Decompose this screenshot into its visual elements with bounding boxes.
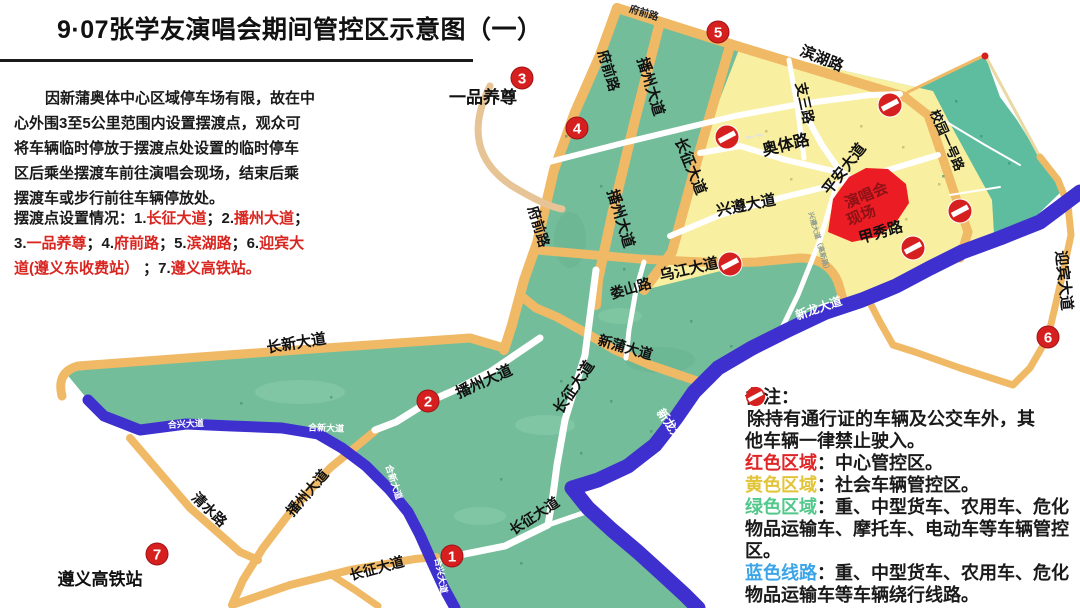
- intro-line: 因新蒲奥体中心区域停车场有限，故在中: [14, 86, 314, 111]
- shuttle-note-text: ；4.: [87, 235, 115, 252]
- map-label: 长征大道: [348, 553, 406, 583]
- legend-text: 区。: [745, 541, 781, 561]
- red-dot: [982, 53, 989, 60]
- map-speck: [955, 100, 958, 103]
- legend-line: 除持有通行证的车辆及公交车外，其: [745, 408, 1080, 430]
- legend-line: 蓝色线路：重、中型货车、农用车、危化: [745, 562, 1080, 584]
- legend-line: 红色区域：中心管控区。: [745, 452, 1080, 474]
- shuttle-place-name: 一品养尊: [27, 235, 87, 252]
- map-speck: [730, 345, 733, 348]
- shuttle-place-name: 滨湖路: [187, 235, 232, 252]
- terrain-patch: [598, 308, 642, 324]
- intro-line: 区后乘坐摆渡车前往演唱会现场，结束后乘: [14, 161, 314, 186]
- map-label: 合新大道: [308, 421, 344, 433]
- shuttle-note-text: ；5.: [159, 235, 187, 252]
- map-speck: [600, 185, 603, 188]
- terrain-patch: [554, 212, 586, 268]
- legend-zone-label: 红色区域: [745, 453, 817, 473]
- shuttle-marker-number: 4: [573, 121, 582, 138]
- road-dash: [756, 134, 763, 137]
- legend-line: 物品运输车等车辆绕行线路。: [745, 584, 1080, 606]
- map-speck: [765, 130, 768, 133]
- shuttle-note-text: ；6.: [232, 235, 260, 252]
- shuttle-place-name: 播州大道: [234, 210, 294, 227]
- shuttle-marker-number: 1: [448, 549, 456, 566]
- legend-line: 备注：: [745, 386, 1080, 408]
- legend-line: 黄色区域：社会车辆管控区。: [745, 474, 1080, 496]
- legend: 备注：除持有通行证的车辆及公交车外，其他车辆一律禁止驶入。红色区域：中心管控区。…: [745, 386, 1080, 606]
- legend-text: ：社会车辆管控区。: [817, 475, 979, 495]
- map-speck: [942, 175, 945, 178]
- legend-line: 物品运输车、摩托车、电动车等车辆管控: [745, 518, 1080, 540]
- road-dash: [746, 136, 753, 139]
- shuttle-note-line: 道(遵义东收费站） ；7.遵义高铁站。: [14, 256, 324, 281]
- title-underline: [0, 59, 473, 62]
- intro-line: 将车辆临时停放于摆渡点处设置的临时停车: [14, 136, 314, 161]
- terrain-patch: [454, 507, 506, 525]
- terrain-patch: [255, 380, 345, 404]
- shuttle-place-name: 道(遵义东收费站）: [14, 260, 139, 277]
- map-speck: [565, 135, 568, 138]
- map-speck: [938, 183, 941, 186]
- legend-text: ：重、中型货车、农用车、危化: [817, 563, 1069, 583]
- shuttle-note: 摆渡点设置情况：1.长征大道；2.播州大道；3.一品养尊；4.府前路；5.滨湖路…: [14, 206, 324, 281]
- intro-line: 心外围3至5公里范围内设置摆渡点，观众可: [14, 111, 314, 136]
- shuttle-note-text: ；7.: [139, 260, 171, 277]
- shuttle-marker-number: 6: [1044, 330, 1052, 347]
- legend-zone-label: 蓝色线路: [745, 563, 817, 583]
- legend-text: ：中心管控区。: [817, 453, 943, 473]
- map-label: 播州大道: [283, 466, 332, 519]
- map-speck: [790, 178, 793, 181]
- map-speck: [610, 400, 613, 403]
- map-speck: [240, 402, 243, 405]
- map-speck: [520, 562, 523, 565]
- map-label: 一品养尊: [449, 87, 517, 107]
- map-speck: [905, 218, 908, 221]
- intro-paragraph: 因新蒲奥体中心区域停车场有限，故在中心外围3至5公里范围内设置摆渡点，观众可将车…: [14, 86, 314, 211]
- map-speck: [580, 452, 583, 455]
- legend-text: 物品运输车、摩托车、电动车等车辆管控: [745, 519, 1069, 539]
- screenshot-root: 演唱会现场府前路滨湖路支三路校园一号路奥体路平安大道兴遵大道甲秀路乌江大道娄山路…: [0, 0, 1080, 608]
- map-speck: [500, 478, 503, 481]
- shuttle-marker-number: 5: [714, 25, 722, 42]
- legend-zone-label: 绿色区域: [745, 497, 817, 517]
- shuttle-note-text: ；: [294, 210, 309, 227]
- shuttle-marker-number: 2: [424, 394, 432, 411]
- shuttle-marker-number: 7: [153, 547, 161, 564]
- map-speck: [690, 320, 693, 323]
- legend-line: 区。: [745, 540, 1080, 562]
- map-label: 合兴大道: [168, 417, 205, 430]
- shuttle-marker-number: 3: [518, 71, 526, 88]
- map-speck: [860, 125, 863, 128]
- legend-text: ：重、中型货车、农用车、危化: [817, 497, 1069, 517]
- map-speck: [1008, 162, 1011, 165]
- legend-zone-label: 黄色区域: [745, 475, 817, 495]
- legend-text: 物品运输车等车辆绕行线路。: [745, 585, 979, 605]
- map-speck: [980, 135, 983, 138]
- shuttle-note-line: 3.一品养尊；4.府前路；5.滨湖路；6.迎宾大: [14, 231, 324, 256]
- shuttle-place-name: 遵义高铁站。: [171, 260, 261, 277]
- legend-text: 除持有通行证的车辆及公交车外，其: [747, 409, 1035, 429]
- shuttle-note-text: ；2.: [207, 210, 235, 227]
- legend-text: 他车辆一律禁止驶入。: [745, 431, 925, 451]
- legend-line: 绿色区域：重、中型货车、农用车、危化: [745, 496, 1080, 518]
- shuttle-place-name: 府前路: [114, 235, 159, 252]
- page-title: 9·07张学友演唱会期间管控区示意图（一）: [57, 10, 577, 46]
- map-speck: [560, 380, 563, 383]
- map-label: 遵义高铁站: [58, 569, 143, 589]
- map-speck: [902, 146, 905, 149]
- map-speck: [623, 268, 626, 271]
- legend-line: 他车辆一律禁止驶入。: [745, 430, 1080, 452]
- map-speck: [330, 396, 333, 399]
- shuttle-place-name: 迎宾大: [259, 235, 304, 252]
- shuttle-place-name: 长征大道: [147, 210, 207, 227]
- map-speck: [650, 430, 653, 433]
- shuttle-note-text: 3.: [14, 235, 27, 252]
- shuttle-note-line: 摆渡点设置情况：1.长征大道；2.播州大道；: [14, 206, 324, 231]
- shuttle-note-text: 摆渡点设置情况：1.: [14, 210, 147, 227]
